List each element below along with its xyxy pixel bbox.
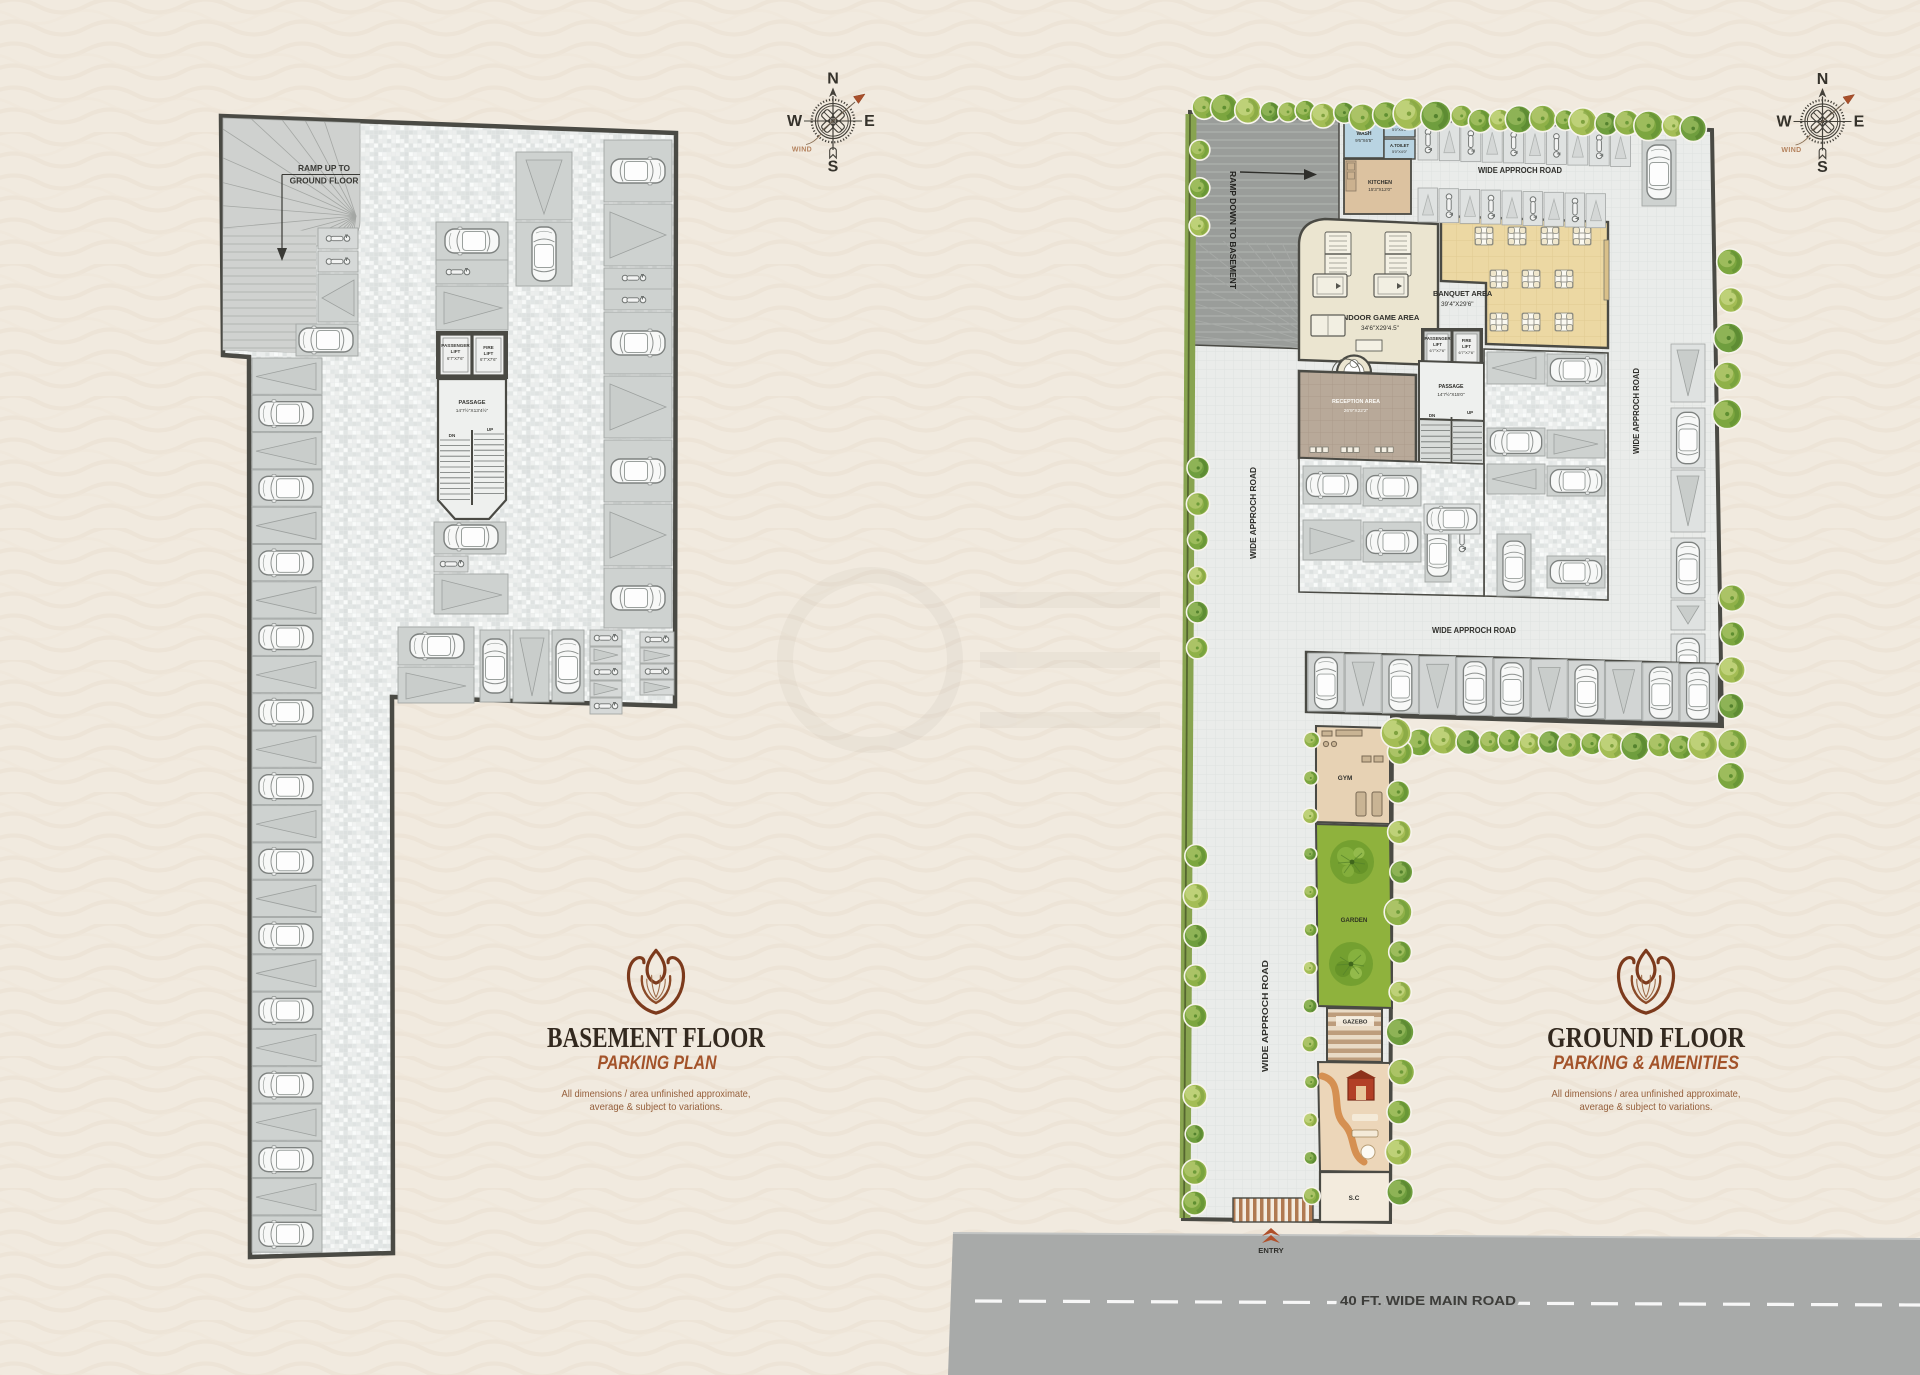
svg-text:WIDE APPROCH ROAD: WIDE APPROCH ROAD: [1261, 960, 1270, 1072]
svg-text:UP: UP: [487, 427, 493, 432]
svg-text:26'9"X22'2": 26'9"X22'2": [1344, 408, 1369, 414]
svg-text:WIDE APPROCH ROAD: WIDE APPROCH ROAD: [1478, 166, 1562, 175]
svg-text:FIRE: FIRE: [483, 345, 493, 350]
svg-text:WIDE APPROCH ROAD: WIDE APPROCH ROAD: [1249, 467, 1258, 559]
svg-text:GROUND FLOOR: GROUND FLOOR: [1547, 1022, 1746, 1054]
svg-text:BASEMENT FLOOR: BASEMENT FLOOR: [547, 1022, 766, 1054]
svg-text:LIFT: LIFT: [484, 351, 494, 356]
svg-text:UP: UP: [1467, 410, 1473, 415]
svg-text:39'4"X29'6": 39'4"X29'6": [1441, 301, 1474, 308]
svg-text:6'7"X7'6": 6'7"X7'6": [1459, 350, 1476, 355]
svg-text:5'0"X4'0": 5'0"X4'0": [1392, 150, 1408, 154]
svg-text:KITCHEN: KITCHEN: [1368, 180, 1392, 186]
svg-text:WIDE APPROCH ROAD: WIDE APPROCH ROAD: [1432, 626, 1516, 635]
svg-text:All dimensions / area unfinish: All dimensions / area unfinished approxi…: [562, 1089, 751, 1100]
svg-text:A.TOILET: A.TOILET: [1390, 143, 1409, 148]
svg-text:PARKING PLAN: PARKING PLAN: [598, 1053, 718, 1074]
svg-text:WIDE APPROCH ROAD: WIDE APPROCH ROAD: [1632, 368, 1641, 454]
svg-text:15'3"X12'0": 15'3"X12'0": [1368, 187, 1392, 192]
svg-text:RECEPTION AREA: RECEPTION AREA: [1332, 399, 1380, 405]
svg-text:PASSENGER: PASSENGER: [1425, 336, 1451, 341]
svg-text:S: S: [1817, 159, 1828, 176]
svg-text:FIRE: FIRE: [1462, 338, 1472, 343]
svg-text:N: N: [1817, 71, 1829, 88]
svg-text:ENTRY: ENTRY: [1258, 1246, 1283, 1255]
svg-text:14'7½"X15'0": 14'7½"X15'0": [1437, 391, 1465, 397]
svg-text:W: W: [1776, 113, 1792, 130]
svg-text:34'6"X29'4.5": 34'6"X29'4.5": [1361, 325, 1399, 332]
svg-text:PASSAGE: PASSAGE: [459, 400, 486, 406]
svg-text:GROUND FLOOR: GROUND FLOOR: [290, 176, 359, 186]
svg-text:9'6"X6'5": 9'6"X6'5": [1355, 138, 1373, 143]
svg-text:All dimensions / area unfinish: All dimensions / area unfinished approxi…: [1552, 1089, 1741, 1100]
svg-text:WIND: WIND: [1781, 147, 1801, 154]
svg-text:LIFT: LIFT: [1462, 344, 1471, 349]
svg-text:GARDEN: GARDEN: [1341, 917, 1368, 924]
svg-text:PARKING & AMENITIES: PARKING & AMENITIES: [1553, 1053, 1739, 1074]
svg-text:GYM: GYM: [1338, 775, 1353, 782]
svg-text:INDOOR GAME AREA: INDOOR GAME AREA: [1341, 313, 1420, 322]
svg-text:40 FT. WIDE MAIN ROAD: 40 FT. WIDE MAIN ROAD: [1340, 1294, 1516, 1308]
svg-text:PASSENGER: PASSENGER: [441, 343, 470, 348]
svg-text:RAMP UP TO: RAMP UP TO: [298, 163, 351, 173]
svg-text:S: S: [828, 159, 839, 176]
svg-text:S.C: S.C: [1349, 1195, 1360, 1202]
svg-text:6'7"X7'6": 6'7"X7'6": [447, 356, 465, 361]
svg-text:DN: DN: [449, 433, 456, 438]
svg-text:average & subject to variation: average & subject to variations.: [590, 1102, 723, 1113]
svg-text:DN: DN: [1429, 413, 1435, 418]
svg-text:LIFT: LIFT: [451, 349, 461, 354]
svg-text:RAMP DOWN TO BASEMENT: RAMP DOWN TO BASEMENT: [1228, 171, 1237, 289]
svg-text:W: W: [787, 113, 803, 130]
svg-text:E: E: [1854, 113, 1865, 130]
svg-text:E: E: [864, 113, 875, 130]
svg-text:6'7"X7'6": 6'7"X7'6": [1430, 348, 1447, 353]
svg-text:N: N: [827, 71, 839, 88]
svg-text:WIND: WIND: [792, 147, 812, 154]
svg-text:average & subject to variation: average & subject to variations.: [1580, 1102, 1713, 1113]
svg-text:BANQUET AREA: BANQUET AREA: [1433, 289, 1493, 298]
svg-text:PASSAGE: PASSAGE: [1439, 384, 1465, 390]
svg-text:6'7"X7'6": 6'7"X7'6": [480, 357, 498, 362]
svg-text:GAZEBO: GAZEBO: [1343, 1020, 1368, 1026]
svg-text:LIFT: LIFT: [1433, 342, 1442, 347]
svg-text:14'7½"X13'4½": 14'7½"X13'4½": [456, 407, 489, 414]
